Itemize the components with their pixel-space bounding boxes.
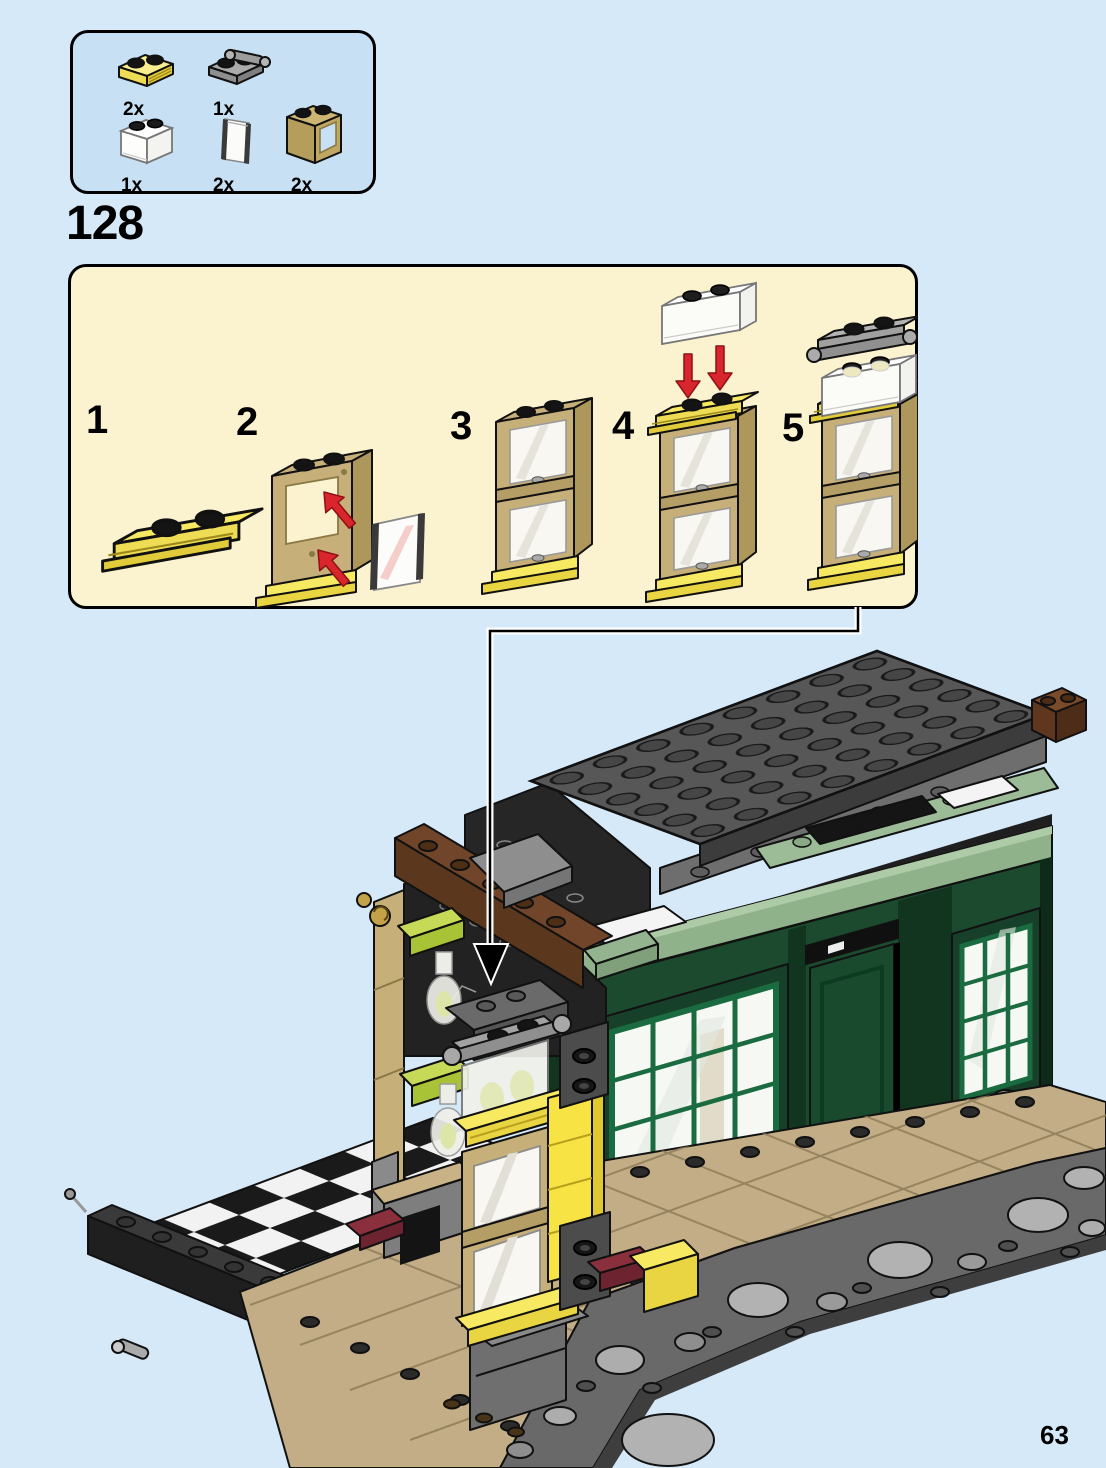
part-qty-label: 1x [121,175,179,197]
substep-illustrations [68,264,918,609]
part-qty-label: 2x [291,175,347,197]
substep-art-3 [482,398,592,594]
substep-art-2 [256,450,425,608]
part-item: 1x [113,115,179,197]
lattice-window-right [952,908,1040,1116]
window-frame-1x2x2-tan-icon [281,99,347,169]
substep-art-5 [807,316,918,590]
glass-pane-trans-icon [205,113,265,169]
part-item: 2x [111,45,181,121]
substep-art-1 [103,509,263,571]
plate-1x2-handle-gray-icon [201,43,271,93]
part-item: 1x [201,43,271,121]
brick-1x2-trans-clear-icon [113,115,179,169]
parts-callout-box: 2x 1x 1x [70,30,376,194]
part-item: 2x [281,99,347,197]
part-item: 2x [205,113,265,197]
page-number: 63 [1040,1420,1069,1451]
instruction-page: { "page": { "number": "63" }, "parts_box… [0,0,1106,1468]
substep-art-4 [646,283,758,602]
step-number: 128 [66,196,143,251]
model-illustration [0,600,1106,1468]
part-qty-label: 2x [213,175,265,197]
plate-1x2-rail-yellow-icon [111,45,181,93]
